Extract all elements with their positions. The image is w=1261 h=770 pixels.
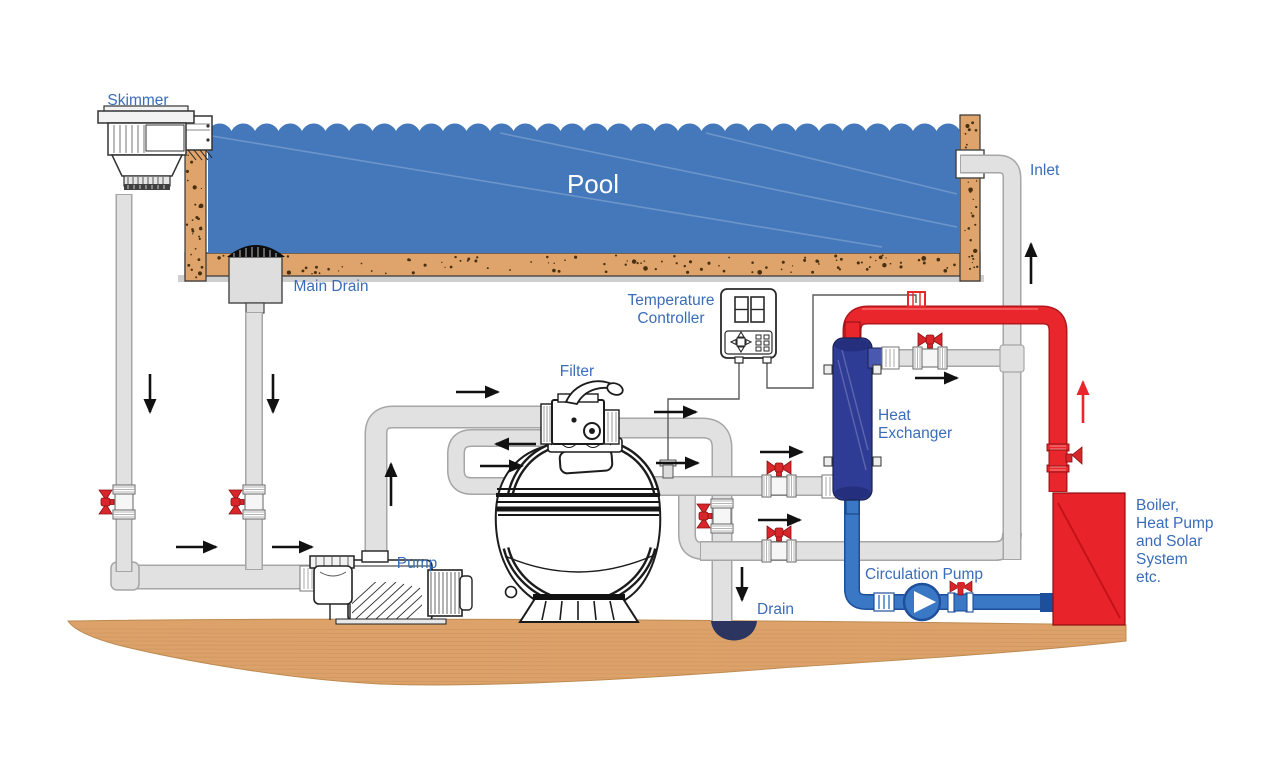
label-temperature-controller-2: Controller bbox=[637, 310, 704, 327]
pump-motor bbox=[428, 570, 462, 616]
heat-exchanger-out-coupler bbox=[882, 347, 899, 369]
drain-bypass-valve bbox=[697, 499, 733, 533]
skimmer-valve bbox=[99, 485, 135, 519]
label-boiler-1: Boiler, bbox=[1136, 497, 1179, 514]
ground bbox=[68, 619, 1126, 685]
heat-exchanger-outlet-valve bbox=[913, 333, 947, 369]
hot-water-pipe bbox=[852, 309, 1058, 492]
filter-base bbox=[520, 594, 638, 622]
bypass-line-valve bbox=[762, 526, 796, 562]
riser-tee-fitting bbox=[1000, 345, 1024, 372]
label-boiler-4: System bbox=[1136, 551, 1188, 568]
pool-right-wall bbox=[960, 115, 980, 281]
skimmer-collar bbox=[124, 184, 170, 190]
skimmer-lid bbox=[98, 111, 194, 123]
label-skimmer: Skimmer bbox=[107, 92, 168, 109]
pump-base bbox=[336, 619, 446, 624]
pool-heating-system-diagram: Skimmer Pool Main Drain Inlet Temperatur… bbox=[0, 0, 1261, 770]
circulation-coupler bbox=[874, 593, 894, 611]
label-circulation-pump: Circulation Pump bbox=[865, 566, 983, 583]
heat-exchanger-inlet-valve bbox=[762, 461, 796, 497]
diagram-canvas: Skimmer Pool Main Drain Inlet Temperatur… bbox=[0, 0, 1261, 770]
boiler-pipe-fitting bbox=[1040, 593, 1054, 612]
label-pool: Pool bbox=[567, 169, 619, 199]
label-boiler-3: and Solar bbox=[1136, 533, 1202, 550]
label-drain: Drain bbox=[757, 601, 794, 618]
pool-left-wall bbox=[185, 148, 206, 281]
pump-strainer-pot bbox=[314, 566, 352, 604]
label-main-drain: Main Drain bbox=[294, 278, 369, 295]
filter-multiport-valve bbox=[541, 381, 624, 452]
label-heat-exchanger-1: Heat bbox=[878, 407, 911, 424]
main-drain-valve bbox=[229, 485, 265, 519]
filter-drain-plug bbox=[506, 587, 517, 598]
boiler-unit bbox=[1053, 493, 1125, 625]
label-boiler-5: etc. bbox=[1136, 569, 1161, 586]
pump-discharge-boss bbox=[362, 551, 388, 562]
label-pump: Pump bbox=[397, 555, 438, 572]
circulation-pump bbox=[874, 581, 973, 620]
circulation-valve bbox=[948, 581, 973, 612]
pool-floor bbox=[185, 253, 980, 276]
label-heat-exchanger-2: Exchanger bbox=[878, 425, 952, 442]
label-boiler-2: Heat Pump bbox=[1136, 515, 1214, 532]
main-drain-fitting bbox=[227, 245, 285, 313]
label-temperature-controller-1: Temperature bbox=[627, 292, 714, 309]
temperature-controller bbox=[721, 289, 776, 363]
label-filter: Filter bbox=[560, 363, 594, 380]
label-inlet: Inlet bbox=[1030, 162, 1060, 179]
boiler-supply-valve bbox=[1047, 444, 1082, 472]
